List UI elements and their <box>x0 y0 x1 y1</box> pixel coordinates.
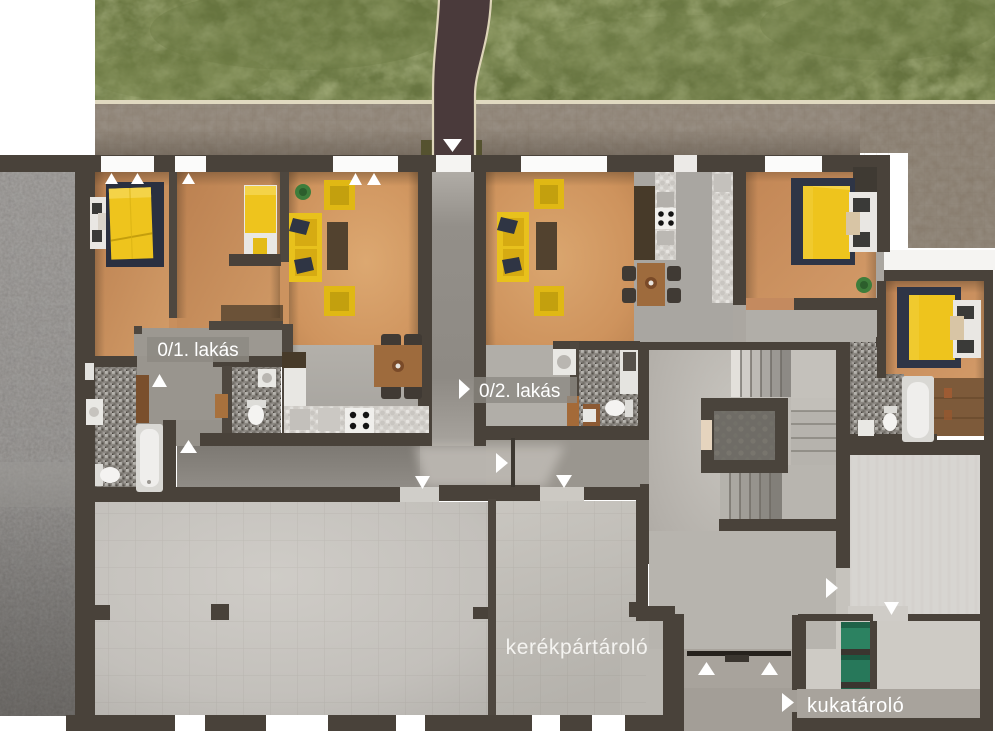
svg-text:kerékpártároló: kerékpártároló <box>506 636 649 659</box>
svg-text:0/1. lakás: 0/1. lakás <box>157 340 238 361</box>
svg-text:kukatároló: kukatároló <box>807 695 904 717</box>
svg-text:0/2. lakás: 0/2. lakás <box>479 381 560 402</box>
